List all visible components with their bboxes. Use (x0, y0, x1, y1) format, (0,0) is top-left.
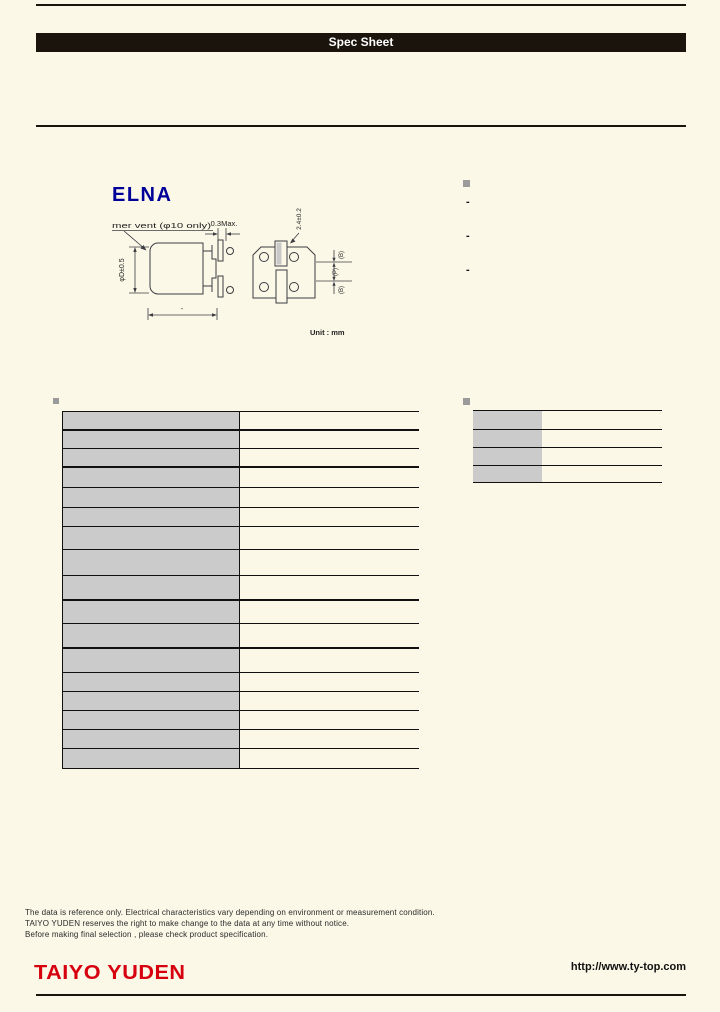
row-value-cell (240, 550, 419, 575)
dim-bottom-label: - (181, 304, 184, 313)
ratings-table (473, 410, 662, 483)
dim-b-top-label: (B) (339, 251, 345, 259)
row-value-cell (542, 430, 662, 447)
row-label-cell (63, 673, 240, 691)
row-value-cell (240, 624, 419, 647)
disclaimer-line: The data is reference only. Electrical c… (25, 907, 585, 918)
row-value-cell (240, 488, 419, 507)
capacitor-dimension-drawing: mer vent (φ10 only) 0.3Max. φD±0.5 - 2.4… (100, 196, 370, 344)
feature-item: - (466, 231, 696, 241)
disclaimer-line: Before making final selection , please c… (25, 929, 585, 940)
row-label-cell (63, 624, 240, 647)
vent-label: mer vent (φ10 only) (112, 221, 212, 230)
row-label-cell (63, 601, 240, 623)
ratings-section-bullet-icon (463, 398, 470, 405)
table-row (63, 624, 419, 649)
page-title: Spec Sheet (36, 33, 686, 52)
table-row (63, 730, 419, 749)
table-row (473, 430, 662, 448)
features-section-bullet-icon (463, 180, 470, 187)
row-label-cell (63, 576, 240, 599)
row-label-cell (63, 508, 240, 526)
row-label-cell (63, 527, 240, 549)
disclaimer-line: TAIYO YUDEN reserves the right to make c… (25, 918, 585, 929)
row-label-cell (63, 431, 240, 448)
table-row (473, 411, 662, 430)
taiyo-yuden-logo: TAIYO YUDEN (34, 962, 186, 985)
company-url-link[interactable]: http://www.ty-top.com (571, 961, 686, 973)
dim-pad-label: 2.4±0.2 (296, 208, 303, 230)
table-row (63, 749, 419, 769)
spec-section-bullet-icon (53, 398, 59, 404)
header-rule (36, 125, 686, 127)
row-value-cell (240, 576, 419, 599)
row-value-cell (240, 730, 419, 748)
table-row (63, 412, 419, 431)
row-label-cell (473, 430, 542, 447)
row-label-cell (473, 411, 542, 429)
row-label-cell (473, 466, 542, 482)
dim-left-label: φD±0.5 (119, 258, 126, 281)
row-value-cell (542, 466, 662, 482)
table-row (63, 550, 419, 576)
unit-label: Unit : mm (310, 328, 345, 337)
row-value-cell (240, 468, 419, 487)
row-value-cell (240, 711, 419, 729)
table-row (63, 449, 419, 468)
table-row (63, 576, 419, 601)
row-value-cell (240, 649, 419, 672)
dim-top-label: 0.3Max. (211, 219, 238, 228)
top-rule (36, 4, 686, 6)
row-label-cell (63, 730, 240, 748)
row-value-cell (240, 449, 419, 466)
table-row (473, 466, 662, 483)
row-value-cell (240, 673, 419, 691)
footer-rule (36, 994, 686, 996)
row-value-cell (542, 411, 662, 429)
table-row (63, 601, 419, 624)
table-row (473, 448, 662, 466)
row-value-cell (542, 448, 662, 465)
dim-b-bottom-label: (B) (339, 286, 345, 294)
dash-bullet-icon: - (466, 265, 470, 275)
table-row (63, 527, 419, 550)
row-value-cell (240, 431, 419, 448)
row-label-cell (63, 449, 240, 466)
row-label-cell (63, 412, 240, 429)
row-value-cell (240, 749, 419, 768)
table-row (63, 508, 419, 527)
row-value-cell (240, 692, 419, 710)
table-row (63, 468, 419, 488)
row-value-cell (240, 508, 419, 526)
row-value-cell (240, 601, 419, 623)
row-label-cell (63, 711, 240, 729)
row-label-cell (63, 468, 240, 487)
dash-bullet-icon: - (466, 197, 470, 207)
table-row (63, 673, 419, 692)
row-label-cell (63, 649, 240, 672)
table-row (63, 649, 419, 673)
dash-bullet-icon: - (466, 231, 470, 241)
dim-p-label: (P) (333, 268, 339, 276)
row-label-cell (473, 448, 542, 465)
table-row (63, 488, 419, 508)
row-label-cell (63, 692, 240, 710)
footer-disclaimer: The data is reference only. Electrical c… (25, 907, 585, 940)
spec-table (62, 411, 419, 769)
feature-item: - (466, 197, 696, 207)
row-value-cell (240, 527, 419, 549)
feature-item: - (466, 265, 696, 275)
row-label-cell (63, 749, 240, 768)
row-label-cell (63, 488, 240, 507)
table-row (63, 431, 419, 449)
row-value-cell (240, 412, 419, 429)
table-row (63, 692, 419, 711)
row-label-cell (63, 550, 240, 575)
table-row (63, 711, 419, 730)
